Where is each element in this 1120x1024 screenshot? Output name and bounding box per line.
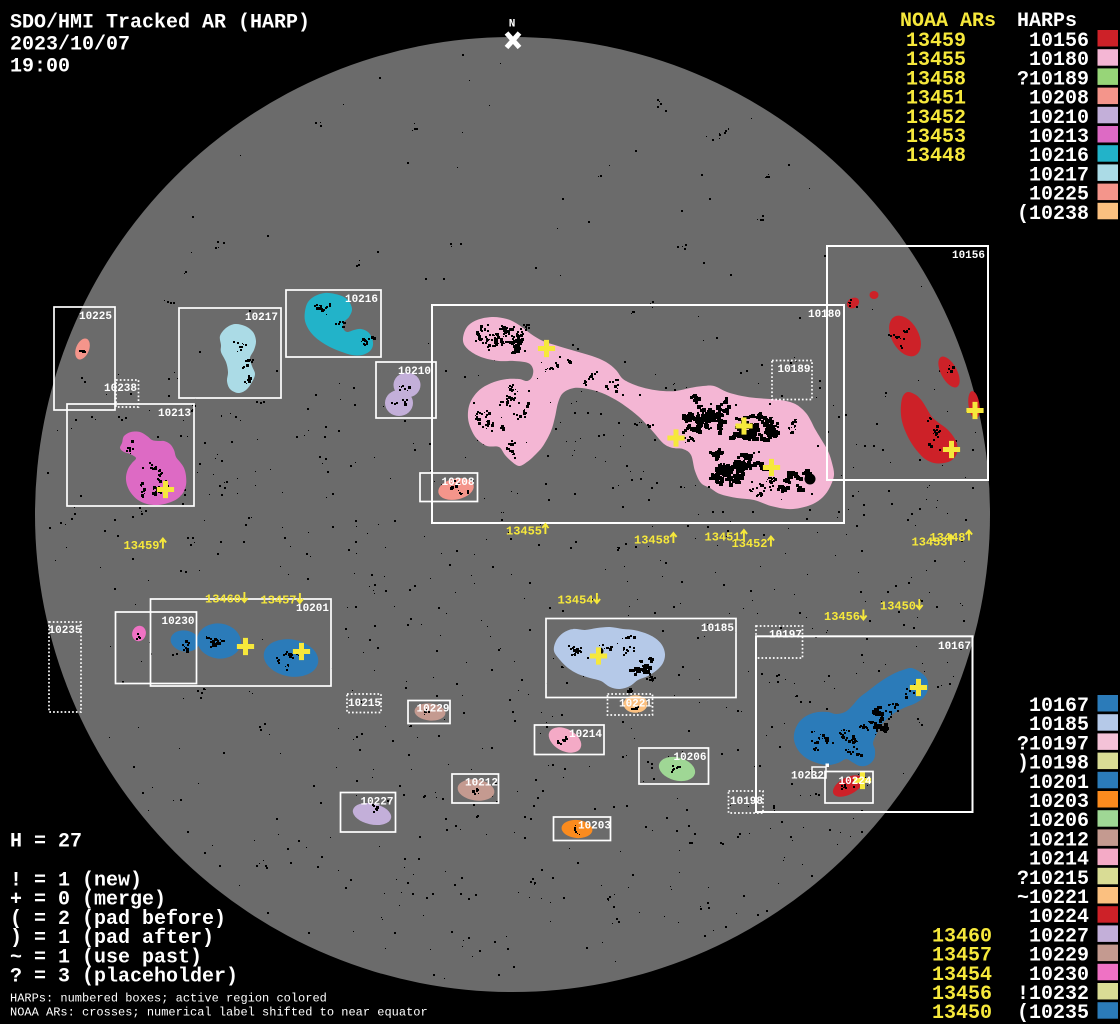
- svg-text:10167: 10167: [938, 641, 971, 653]
- svg-text:10198: 10198: [730, 796, 763, 808]
- svg-text:10208: 10208: [441, 477, 474, 489]
- svg-text:10225: 10225: [79, 311, 112, 323]
- svg-text:(10238: (10238: [1017, 203, 1089, 226]
- svg-text:13448: 13448: [906, 145, 966, 168]
- svg-text:10227: 10227: [360, 797, 393, 809]
- svg-text:10214: 10214: [569, 729, 602, 741]
- svg-text:SDO/HMI Tracked AR (HARP): SDO/HMI Tracked AR (HARP): [10, 12, 310, 35]
- svg-text:13458: 13458: [634, 534, 670, 548]
- svg-text:10238: 10238: [104, 383, 137, 395]
- svg-text:10213: 10213: [158, 408, 191, 420]
- svg-text:10235: 10235: [49, 625, 82, 637]
- svg-text:10210: 10210: [398, 366, 431, 378]
- svg-text:13450: 13450: [880, 600, 916, 614]
- svg-text:13448: 13448: [930, 531, 966, 545]
- svg-text:10216: 10216: [345, 294, 378, 306]
- svg-text:10215: 10215: [348, 698, 381, 710]
- svg-text:13450: 13450: [932, 1002, 992, 1024]
- svg-text:19:00: 19:00: [10, 56, 70, 79]
- svg-text:? = 3 (placeholder): ? = 3 (placeholder): [10, 966, 238, 989]
- svg-text:10221: 10221: [619, 699, 652, 711]
- svg-text:10206: 10206: [673, 752, 706, 764]
- svg-text:(10235: (10235: [1017, 1002, 1089, 1024]
- svg-text:13452: 13452: [732, 537, 768, 551]
- svg-text:10180: 10180: [808, 309, 841, 321]
- svg-text:HARPs: numbered boxes; active: HARPs: numbered boxes; active region col…: [10, 992, 327, 1006]
- svg-text:13455: 13455: [506, 525, 542, 539]
- svg-text:13459: 13459: [124, 539, 160, 553]
- svg-text:NOAA ARs: crosses; numerical l: NOAA ARs: crosses; numerical label shift…: [10, 1006, 428, 1020]
- svg-text:10230: 10230: [161, 616, 194, 628]
- svg-text:10212: 10212: [465, 778, 498, 790]
- svg-text:10189: 10189: [777, 364, 810, 376]
- svg-text:2023/10/07: 2023/10/07: [10, 34, 130, 57]
- svg-text:10217: 10217: [245, 312, 278, 324]
- svg-text:10224: 10224: [838, 776, 871, 788]
- svg-text:13457: 13457: [261, 594, 297, 608]
- svg-text:10232: 10232: [791, 771, 824, 783]
- svg-text:N: N: [509, 19, 516, 31]
- svg-text:13454: 13454: [558, 594, 594, 608]
- svg-text:10229: 10229: [416, 704, 449, 716]
- svg-text:H = 27: H = 27: [10, 831, 82, 854]
- svg-text:10185: 10185: [701, 623, 734, 635]
- svg-text:10203: 10203: [578, 821, 611, 833]
- svg-text:10201: 10201: [296, 603, 329, 615]
- svg-text:13456: 13456: [824, 610, 860, 624]
- svg-text:10156: 10156: [952, 250, 985, 262]
- svg-text:13460: 13460: [205, 593, 241, 607]
